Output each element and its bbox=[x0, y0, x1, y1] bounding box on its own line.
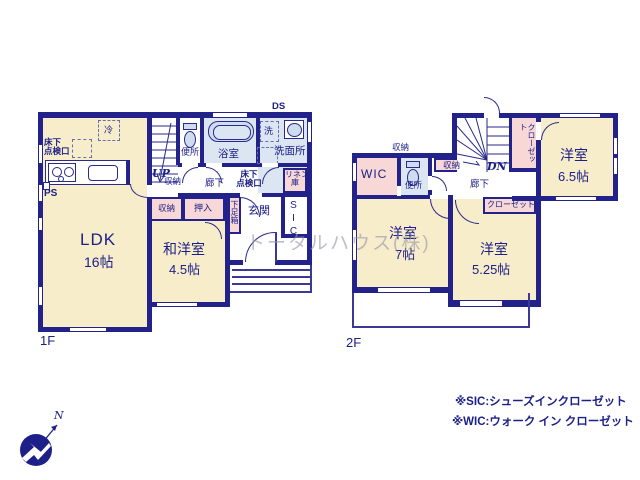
door-gap bbox=[397, 186, 401, 196]
door-arc-wc2 bbox=[432, 176, 447, 191]
wall bbox=[200, 118, 204, 165]
washroom-label: 洗面所 bbox=[274, 146, 306, 157]
balcony-edge bbox=[352, 326, 530, 328]
door-arc-wc1 bbox=[182, 167, 198, 183]
dn-label: DN bbox=[487, 161, 507, 173]
wayoshitsu-label: 和洋室 bbox=[163, 242, 205, 257]
genkan-label: 玄関 bbox=[248, 206, 270, 218]
window bbox=[613, 138, 618, 154]
wall bbox=[176, 118, 180, 165]
hall1-label: 廊下 bbox=[205, 179, 224, 189]
compass: N bbox=[10, 408, 70, 472]
shunou-top-label: 収納 bbox=[392, 143, 409, 152]
note-sic: ※SIC:シューズインクローゼット bbox=[455, 396, 627, 408]
fridge-label: 冷 bbox=[104, 126, 113, 135]
window bbox=[38, 218, 43, 230]
window bbox=[157, 302, 197, 307]
floor1-label: 1F bbox=[40, 334, 55, 348]
porch-step bbox=[232, 283, 310, 285]
wc1-label: 便所 bbox=[181, 148, 199, 157]
floor-hatch-kitchen-label: 床下点検口 bbox=[44, 138, 70, 156]
window bbox=[460, 300, 502, 307]
compass-n-label: N bbox=[54, 410, 64, 422]
toilet-icon-2f bbox=[406, 161, 420, 168]
window bbox=[307, 122, 312, 142]
stairs-1f-treads bbox=[150, 118, 178, 198]
room65-size: 6.5帖 bbox=[558, 170, 589, 184]
wayoshitsu-size: 4.5帖 bbox=[169, 263, 200, 277]
shunou-stairs-label: 収納 bbox=[164, 177, 181, 186]
floor-hatch-hall-label: 床下点検口 bbox=[233, 170, 265, 188]
closet-h-label: クローゼット bbox=[487, 201, 535, 209]
toilet-icon-1f bbox=[183, 123, 197, 130]
wic-label: WIC bbox=[361, 168, 387, 181]
room65-label: 洋室 bbox=[560, 148, 588, 163]
ldk-size: 16帖 bbox=[84, 255, 114, 270]
floor-hatch-kitchen bbox=[72, 139, 92, 158]
room525-label: 洋室 bbox=[480, 242, 508, 257]
linen-label: リネン庫 bbox=[285, 171, 305, 188]
note-wic: ※WIC:ウォーク イン クローゼット bbox=[452, 416, 634, 428]
stairs-1f bbox=[150, 118, 178, 198]
wall bbox=[38, 112, 312, 118]
wall bbox=[352, 153, 457, 158]
hall2-label: 廊下 bbox=[470, 180, 489, 190]
window bbox=[556, 196, 596, 201]
closet-v-label: クローゼット bbox=[519, 123, 535, 169]
door-arc-stairs-top bbox=[484, 97, 500, 113]
stove-icon bbox=[48, 163, 76, 182]
wc2-label: 便所 bbox=[405, 181, 422, 190]
ps-label: PS bbox=[44, 189, 57, 200]
balcony-edge bbox=[352, 293, 354, 328]
oshiire-label: 押入 bbox=[194, 204, 212, 213]
toilet-bowl-1f bbox=[184, 131, 196, 148]
window bbox=[38, 287, 43, 305]
porch-edge bbox=[230, 291, 312, 293]
window bbox=[213, 112, 247, 118]
window bbox=[70, 327, 106, 332]
window bbox=[352, 163, 357, 181]
wall bbox=[613, 113, 618, 201]
room525-size: 5.25帖 bbox=[472, 263, 510, 277]
shunou-label: 収納 bbox=[158, 204, 175, 213]
kitchen-sink-icon bbox=[88, 165, 118, 181]
window bbox=[613, 158, 618, 174]
window bbox=[378, 287, 430, 293]
bath-label: 浴室 bbox=[218, 149, 239, 160]
ldk-label: LDK bbox=[80, 231, 116, 249]
ds-label: DS bbox=[272, 102, 285, 112]
shoebox-label: 下足箱 bbox=[230, 200, 238, 232]
wall bbox=[509, 118, 512, 172]
porch-edge bbox=[310, 265, 312, 293]
wash-basin-icon bbox=[284, 120, 304, 139]
floor2-label: 2F bbox=[346, 336, 361, 350]
door-gap bbox=[484, 113, 499, 118]
watermark: トータルハウス(株) bbox=[246, 228, 431, 255]
balcony-edge bbox=[528, 293, 530, 328]
porch-step bbox=[232, 269, 310, 271]
porch-step bbox=[232, 276, 310, 278]
shunou-hall-label: 収納 bbox=[443, 161, 460, 170]
wall bbox=[536, 196, 541, 307]
window bbox=[560, 113, 600, 118]
floorplan-canvas: 冷 床下点検口 PS 洗 bbox=[0, 0, 640, 480]
window bbox=[38, 145, 43, 163]
bathtub-icon bbox=[208, 121, 254, 142]
laundry-label: 洗 bbox=[264, 127, 273, 136]
